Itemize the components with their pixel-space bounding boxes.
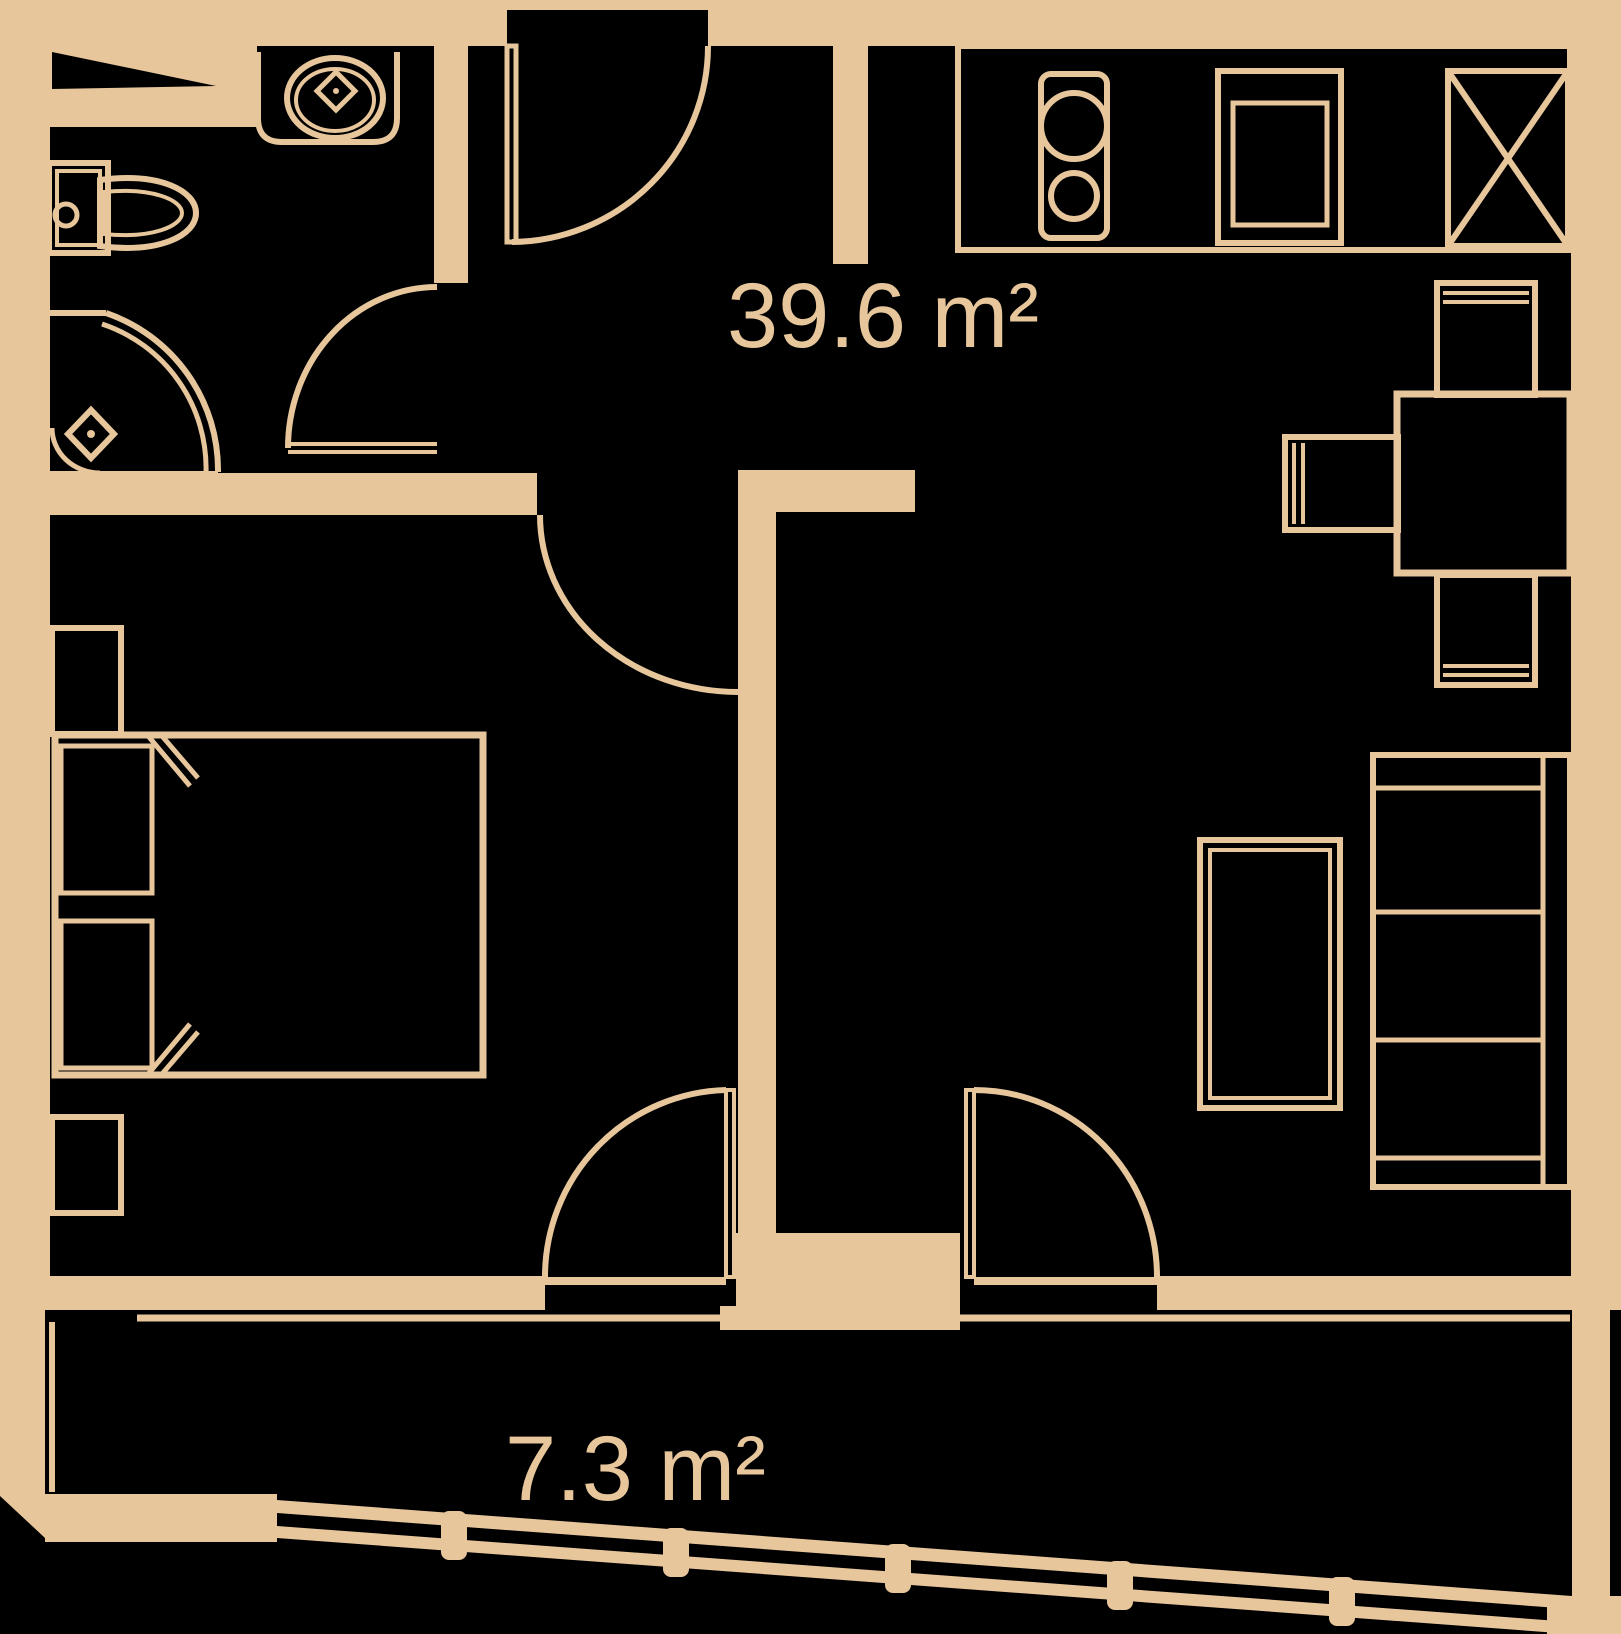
wall-bottom-right-segment	[1157, 1276, 1621, 1310]
wall-balcony-right	[1572, 1310, 1610, 1602]
plan-background	[0, 0, 1621, 1634]
wall-bottom-left-segment	[0, 1276, 545, 1310]
wall-right	[1571, 0, 1621, 1310]
living-area-label: 39.6 m²	[727, 265, 1039, 367]
wall-left	[0, 0, 50, 1310]
wall-center	[738, 512, 776, 1233]
balcony-area-label: 7.3 m²	[505, 1418, 766, 1520]
wall-hall-kitchen-divider	[833, 46, 868, 264]
railing-post	[1329, 1577, 1355, 1626]
shower-drain-dot	[87, 430, 95, 438]
entrance-opening	[507, 10, 708, 46]
railing-post	[885, 1544, 911, 1593]
wall-hall-bottom	[738, 470, 915, 512]
railing-post	[1107, 1561, 1133, 1610]
wall-top	[0, 0, 1621, 46]
faucet-dot	[333, 88, 339, 94]
wall-bathroom-right	[434, 46, 468, 283]
railing-post	[663, 1528, 689, 1577]
floor-plan-svg: 39.6 m² 7.3 m²	[0, 0, 1621, 1634]
floor-plan-stage: 39.6 m² 7.3 m²	[0, 0, 1621, 1634]
railing-post	[441, 1511, 467, 1560]
balcony-slab	[45, 1494, 277, 1542]
wall-bedroom-top	[50, 473, 537, 515]
